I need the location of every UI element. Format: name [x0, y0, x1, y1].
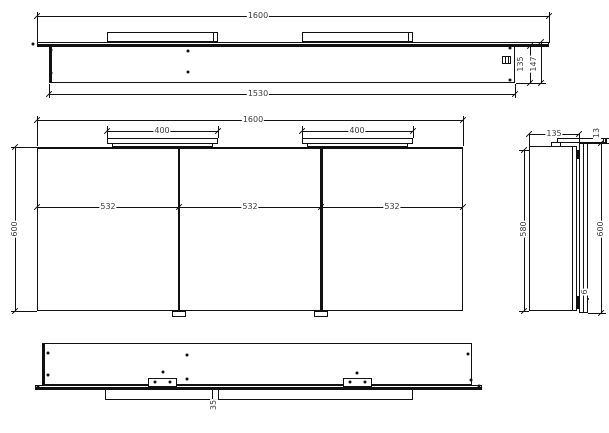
dim-line-1530: [49, 94, 515, 95]
screw-hole-dot: [32, 43, 35, 46]
door-divider-right: [320, 147, 323, 311]
dim-label-overall-width-front: 1600: [242, 116, 264, 124]
light-bar-right-top-view: [302, 32, 413, 42]
extension-line: [516, 46, 536, 47]
extension-line: [413, 126, 414, 138]
bottom-panel-strip: [35, 385, 482, 390]
screw-hole-dot: [162, 371, 165, 374]
screw-hole-dot: [47, 374, 50, 377]
extension-line: [49, 84, 50, 98]
mounting-bracket: [343, 378, 372, 387]
leader-dot: [587, 298, 589, 300]
door-divider-left: [178, 147, 180, 311]
side-frame-line: [572, 146, 573, 311]
screw-hole-dot: [50, 72, 53, 75]
light-bar-left-top-view: [107, 32, 218, 42]
dim-line-147: [541, 42, 542, 83]
dim-label-height-front: 600: [11, 220, 19, 237]
bottom-tab: [172, 311, 186, 317]
screw-hole-dot: [356, 372, 359, 375]
extension-line: [579, 134, 580, 143]
extension-line: [37, 12, 38, 42]
dim-label-compartment-right: 532: [383, 203, 400, 211]
screw-hole-dot: [509, 47, 512, 50]
screw-hole-dot: [187, 71, 190, 74]
hinge-mark: [576, 150, 579, 159]
dim-label-compartment-middle: 532: [241, 203, 258, 211]
screw-hole-dot: [169, 381, 172, 384]
extension-line: [218, 126, 219, 138]
dim-label-overall-width-top: 1600: [247, 12, 269, 20]
carcass-bottom-view: [42, 343, 472, 385]
cabinet-front-view: [37, 147, 463, 311]
screw-hole-dot: [470, 379, 473, 382]
screw-hole-dot: [467, 353, 470, 356]
hinge-detail-line: [508, 57, 509, 63]
dim-label-compartment-left: 532: [99, 203, 116, 211]
hinge-block: [502, 56, 511, 64]
screw-hole-dot: [47, 352, 50, 355]
dim-label-depth-top: 135: [517, 55, 525, 72]
extension-line: [588, 313, 606, 314]
dim-label-depth-side: 135: [545, 130, 562, 138]
door-bottom-recess-edge: [412, 390, 413, 399]
extension-line: [549, 12, 550, 43]
dim-label-bottom-gap: 6: [581, 288, 589, 295]
extension-line: [463, 116, 464, 146]
dim-label-light-left: 400: [153, 127, 170, 135]
light-bar-end-cap: [213, 32, 214, 42]
dim-label-carcass-width: 1530: [247, 90, 269, 98]
dim-label-light-right: 400: [348, 127, 365, 135]
screw-hole-dot: [50, 49, 53, 52]
door-bottom-recess-edge: [105, 390, 106, 399]
door-bottom-recess-line: [105, 399, 413, 400]
dim-line-1600-top: [37, 16, 549, 17]
notch-edge: [218, 390, 219, 399]
screw-hole-dot: [37, 386, 40, 389]
notch-edge: [212, 390, 213, 399]
screw-hole-dot: [186, 378, 189, 381]
extension-line: [515, 84, 516, 98]
dim-label-total-depth: 147: [530, 55, 538, 72]
hinge-detail-line: [505, 57, 506, 63]
mounting-bracket: [148, 378, 177, 387]
extension-line: [107, 126, 108, 138]
extension-line: [529, 134, 530, 146]
light-bar-end-cap: [408, 32, 409, 42]
extension-line: [588, 143, 606, 144]
screw-hole-dot: [44, 387, 46, 389]
technical-drawing-canvas: 1600 1530: [0, 0, 609, 433]
bottom-tab: [314, 311, 328, 317]
carcass-top-view: [49, 46, 515, 83]
screw-hole-dot: [50, 53, 52, 55]
dim-label-total-height: 600: [597, 220, 605, 237]
dim-label-carcass-height: 580: [520, 220, 528, 237]
extension-line: [37, 116, 38, 146]
dim-label-light-height: 13: [593, 127, 601, 139]
screw-hole-dot: [349, 381, 352, 384]
screw-hole-dot: [187, 50, 190, 53]
screw-hole-dot: [186, 354, 189, 357]
cabinet-side-view: [529, 146, 577, 311]
hinge-mark: [576, 296, 579, 309]
screw-hole-dot: [478, 385, 481, 388]
dim-label-notch-width: 35: [210, 399, 218, 411]
screw-hole-dot: [364, 381, 367, 384]
screw-hole-dot: [154, 381, 157, 384]
screw-hole-dot: [509, 79, 512, 82]
extension-line: [302, 126, 303, 138]
